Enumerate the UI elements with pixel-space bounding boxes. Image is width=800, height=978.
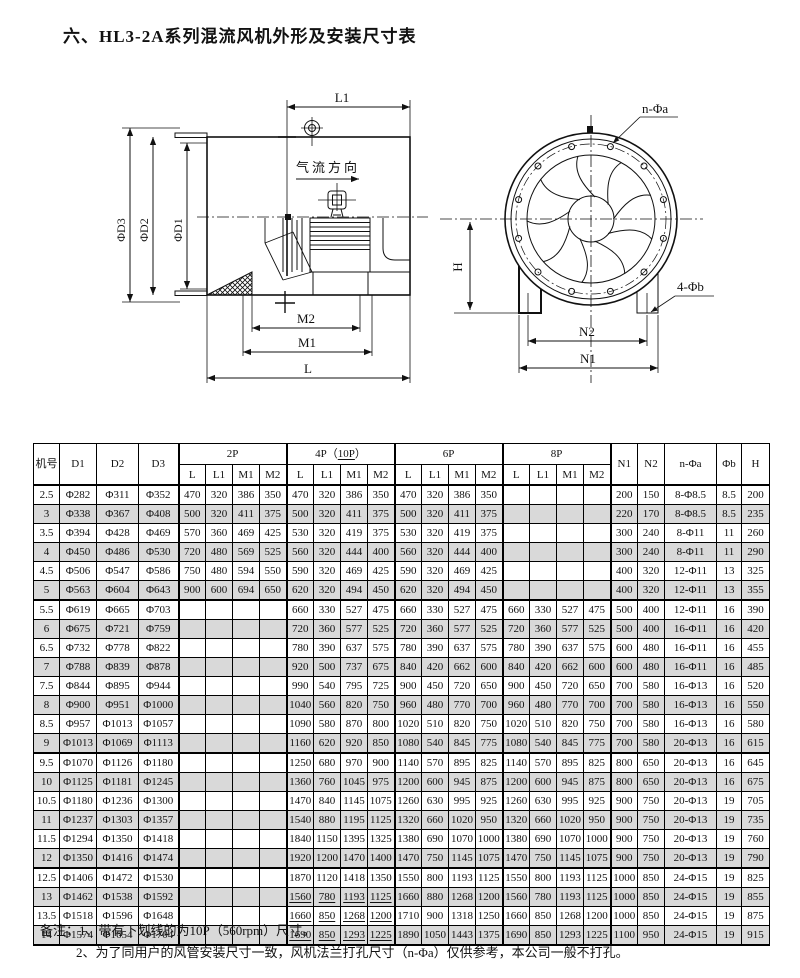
cell: 13 (34, 888, 60, 907)
cell: 320 (206, 505, 233, 524)
cell: 16-Φ11 (665, 639, 717, 658)
cell: Φ721 (97, 620, 139, 639)
cell: 11 (717, 543, 742, 562)
cell: 1400 (368, 849, 395, 869)
cell: 975 (368, 773, 395, 792)
cell (530, 581, 557, 601)
cell: Φ643 (139, 581, 179, 601)
cell (233, 753, 260, 773)
cell: 1360 (287, 773, 314, 792)
cell: 575 (368, 639, 395, 658)
cell: 1150 (314, 830, 341, 849)
cell: 390 (314, 639, 341, 658)
cell: 850 (638, 888, 665, 907)
cell: Φ665 (97, 600, 139, 620)
dim-label-d3: ΦD3 (114, 218, 128, 241)
cell: 900 (611, 830, 638, 849)
cell: 620 (287, 581, 314, 601)
cell: 20-Φ13 (665, 792, 717, 811)
cell: 444 (341, 543, 368, 562)
cell: 950 (476, 811, 503, 830)
cell: Φ586 (139, 562, 179, 581)
cell: 770 (449, 696, 476, 715)
cell (557, 562, 584, 581)
cell: 525 (260, 543, 287, 562)
cell: 690 (422, 830, 449, 849)
cell: 260 (742, 524, 770, 543)
cell: 500 (287, 505, 314, 524)
cell: 16 (717, 734, 742, 754)
sub-header-cell: M1 (233, 465, 260, 486)
cell (260, 715, 287, 734)
cell: 960 (395, 696, 422, 715)
cell: 735 (742, 811, 770, 830)
cell: Φ486 (97, 543, 139, 562)
cell: 386 (449, 485, 476, 505)
cell: Φ1357 (139, 811, 179, 830)
cell: Φ944 (139, 677, 179, 696)
cell: 720 (449, 677, 476, 696)
cell (233, 715, 260, 734)
cell: 855 (742, 888, 770, 907)
cell: 480 (530, 696, 557, 715)
cell: 900 (611, 792, 638, 811)
cell: 320 (314, 581, 341, 601)
table-row: 13Φ1462Φ1538Φ159215607801193112516608801… (34, 888, 770, 907)
cell: 900 (611, 849, 638, 869)
cell: Φ1236 (97, 792, 139, 811)
dim-label-n2: N2 (579, 324, 595, 339)
cell: 375 (476, 505, 503, 524)
cell: 320 (314, 562, 341, 581)
cell: 475 (476, 600, 503, 620)
table-row: 7Φ788Φ839Φ878920500737675840420662600840… (34, 658, 770, 677)
group-header-8p: 8P (503, 444, 611, 465)
table-row: 8.5Φ957Φ1013Φ105710905808708001020510820… (34, 715, 770, 734)
cell: 350 (368, 485, 395, 505)
sub-header-cell: M2 (584, 465, 611, 486)
cell: 375 (476, 524, 503, 543)
cell: 2.5 (34, 485, 60, 505)
cell: 19 (717, 849, 742, 869)
cell: 840 (503, 658, 530, 677)
cell: 750 (368, 696, 395, 715)
cell: 360 (314, 620, 341, 639)
cell: 845 (449, 734, 476, 754)
cell: 580 (742, 715, 770, 734)
cell: 570 (530, 753, 557, 773)
cell: 10.5 (34, 792, 60, 811)
cell: 320 (422, 505, 449, 524)
cell: 24-Φ15 (665, 868, 717, 888)
cell: 1193 (557, 888, 584, 907)
cell: 825 (742, 868, 770, 888)
cell (503, 505, 530, 524)
cell: 540 (314, 677, 341, 696)
cell: 637 (341, 639, 368, 658)
cell: 16 (717, 620, 742, 639)
cell: 16-Φ13 (665, 715, 717, 734)
cell (179, 696, 206, 715)
cell: 1070 (557, 830, 584, 849)
cell: 1125 (476, 868, 503, 888)
cell: 570 (422, 753, 449, 773)
table-row: 11.5Φ1294Φ1350Φ1418184011501395132513806… (34, 830, 770, 849)
cell: 920 (287, 658, 314, 677)
cell: 240 (638, 543, 665, 562)
cell: 419 (449, 524, 476, 543)
col-header-n-phi-a: n-Φa (665, 444, 717, 486)
cell (557, 581, 584, 601)
cell: 690 (530, 830, 557, 849)
cell: 3.5 (34, 524, 60, 543)
remarks: 备注：1、带有下划线的为10P（560rpm）尺寸。 2、为了同用户的风管安装尺… (40, 920, 629, 964)
cell: 1020 (503, 715, 530, 734)
cell: 850 (638, 868, 665, 888)
cell: 820 (449, 715, 476, 734)
dim-label-m2: M2 (297, 311, 315, 326)
cell: 469 (449, 562, 476, 581)
cell: 8.5 (717, 505, 742, 524)
cell (206, 696, 233, 715)
cell (233, 773, 260, 792)
sub-header-cell: L (287, 465, 314, 486)
cell: 1395 (341, 830, 368, 849)
cell: Φ1538 (97, 888, 139, 907)
cell: 240 (638, 524, 665, 543)
cell: 300 (611, 543, 638, 562)
table-row: 4.5Φ506Φ547Φ5867504805945505903204694255… (34, 562, 770, 581)
cell: 475 (584, 600, 611, 620)
table-row: 12.5Φ1406Φ1472Φ1530187011201418135015508… (34, 868, 770, 888)
cell: 320 (422, 562, 449, 581)
dim-label-l1: L1 (335, 90, 349, 105)
cell: 900 (503, 677, 530, 696)
cell: 950 (584, 811, 611, 830)
table-row: 9.5Φ1070Φ1126Φ11801250680970900114057089… (34, 753, 770, 773)
cell: 875 (584, 773, 611, 792)
cell: 850 (368, 734, 395, 754)
cell: 620 (395, 581, 422, 601)
cell: 600 (611, 658, 638, 677)
cell: 950 (638, 926, 665, 946)
cell: 469 (341, 562, 368, 581)
cell: 386 (233, 485, 260, 505)
cell: Φ311 (97, 485, 139, 505)
cell: 1840 (287, 830, 314, 849)
cell: 1195 (341, 811, 368, 830)
col-header-d3: D3 (139, 444, 179, 486)
cell (206, 620, 233, 639)
cell: 8.5 (717, 485, 742, 505)
sub-header-cell: L1 (530, 465, 557, 486)
cell: 1160 (287, 734, 314, 754)
cell (179, 620, 206, 639)
cell: 500 (611, 620, 638, 639)
cell: 19 (717, 926, 742, 946)
dim-label-d2: ΦD2 (137, 218, 151, 241)
cell: 16-Φ13 (665, 677, 717, 696)
cell: 16 (717, 715, 742, 734)
cell: 1125 (368, 811, 395, 830)
cell: 820 (341, 696, 368, 715)
cell: 480 (638, 658, 665, 677)
cell: 411 (341, 505, 368, 524)
airflow-direction-label: 气流方向 (296, 160, 360, 175)
cell: 569 (233, 543, 260, 562)
cell: 419 (341, 524, 368, 543)
cell: 580 (314, 715, 341, 734)
cell: 577 (341, 620, 368, 639)
cell: Φ1113 (139, 734, 179, 754)
cell: 500 (314, 658, 341, 677)
table-row: 10.5Φ1180Φ1236Φ1300147084011451075126063… (34, 792, 770, 811)
group-header-4p-10p: 4P（10P） (287, 444, 395, 465)
cell: Φ1013 (97, 715, 139, 734)
dim-label-l: L (304, 361, 312, 376)
table-row: 5Φ563Φ604Φ643900600694650620320494450620… (34, 581, 770, 601)
cell: 840 (314, 792, 341, 811)
cell: 470 (179, 485, 206, 505)
dim-label-d1: ΦD1 (171, 218, 185, 241)
cell: 1145 (557, 849, 584, 869)
cell: 320 (422, 524, 449, 543)
cell: 330 (530, 600, 557, 620)
cell: 600 (611, 639, 638, 658)
cell: 485 (742, 658, 770, 677)
cell (206, 773, 233, 792)
cell: 235 (742, 505, 770, 524)
cell: Φ1472 (97, 868, 139, 888)
cell (179, 888, 206, 907)
cell: 1250 (287, 753, 314, 773)
cell: 580 (638, 696, 665, 715)
cell: 320 (314, 524, 341, 543)
cell: 650 (638, 753, 665, 773)
cell: 637 (449, 639, 476, 658)
cell: 350 (476, 485, 503, 505)
cell: 780 (287, 639, 314, 658)
cell: 470 (287, 485, 314, 505)
cell (260, 811, 287, 830)
cell: 570 (179, 524, 206, 543)
cell (557, 524, 584, 543)
cell: 400 (638, 620, 665, 639)
cell: 390 (742, 600, 770, 620)
cell (260, 773, 287, 792)
cell: 737 (341, 658, 368, 677)
cell: 527 (449, 600, 476, 620)
cell: 1125 (584, 868, 611, 888)
cell: 375 (368, 524, 395, 543)
cell (206, 734, 233, 754)
cell: 400 (368, 543, 395, 562)
cell: 220 (611, 505, 638, 524)
cell: 16 (717, 696, 742, 715)
cell: 600 (584, 658, 611, 677)
cell (260, 639, 287, 658)
cell: Φ1245 (139, 773, 179, 792)
cell (233, 600, 260, 620)
cell: 330 (422, 600, 449, 620)
dim-label-m1: M1 (298, 335, 316, 350)
cell: 760 (742, 830, 770, 849)
cell: 470 (395, 485, 422, 505)
col-header-h: H (742, 444, 770, 486)
cell: 750 (638, 849, 665, 869)
cell: 945 (557, 773, 584, 792)
cell: 825 (584, 753, 611, 773)
cell: 5 (34, 581, 60, 601)
cell: 895 (557, 753, 584, 773)
cell: 1200 (503, 773, 530, 792)
cell (557, 485, 584, 505)
cell (179, 830, 206, 849)
cell: 13 (717, 562, 742, 581)
cell: 880 (422, 888, 449, 907)
cell (179, 849, 206, 869)
cell (179, 658, 206, 677)
cell: 19 (717, 868, 742, 888)
cell: 795 (341, 677, 368, 696)
sub-header-cell: L (395, 465, 422, 486)
cell: 650 (260, 581, 287, 601)
table-row: 10Φ1125Φ1181Φ124513607601045975120060094… (34, 773, 770, 792)
cell: 494 (449, 581, 476, 601)
cell: 469 (233, 524, 260, 543)
fan-front-view-drawing: n-Φa H 4-Φb N2 N1 (440, 95, 770, 395)
table-row: 5.5Φ619Φ665Φ7036603305274756603305274756… (34, 600, 770, 620)
cell: 400 (476, 543, 503, 562)
cell: 420 (422, 658, 449, 677)
cell: 170 (638, 505, 665, 524)
cell: 845 (557, 734, 584, 754)
cell: 475 (368, 600, 395, 620)
cell: 590 (287, 562, 314, 581)
cell: 1075 (368, 792, 395, 811)
cell: 320 (314, 505, 341, 524)
cell: Φ506 (60, 562, 97, 581)
cell: 600 (422, 773, 449, 792)
cell (179, 868, 206, 888)
cell: 500 (395, 505, 422, 524)
cell: Φ563 (60, 581, 97, 601)
cell: 1268 (449, 888, 476, 907)
cell: 1020 (395, 715, 422, 734)
cell: 420 (742, 620, 770, 639)
cell: 400 (611, 581, 638, 601)
cell: 24-Φ15 (665, 907, 717, 926)
cell: 8.5 (34, 715, 60, 734)
cell: Φ367 (97, 505, 139, 524)
cell: 900 (179, 581, 206, 601)
col-header-d1: D1 (60, 444, 97, 486)
cell: 350 (260, 485, 287, 505)
cell: 9 (34, 734, 60, 754)
cell (206, 868, 233, 888)
cell: 510 (422, 715, 449, 734)
cell: 300 (611, 524, 638, 543)
cell: 320 (206, 485, 233, 505)
cell: 1193 (557, 868, 584, 888)
cell: 600 (476, 658, 503, 677)
cell: 945 (449, 773, 476, 792)
cell (584, 524, 611, 543)
cell: Φ822 (139, 639, 179, 658)
col-header-n1: N1 (611, 444, 638, 486)
cell (206, 888, 233, 907)
cell (206, 830, 233, 849)
cell: 20-Φ13 (665, 734, 717, 754)
cell: Φ1418 (139, 830, 179, 849)
cell: 425 (476, 562, 503, 581)
cell: 6 (34, 620, 60, 639)
cell: 700 (611, 677, 638, 696)
cell (206, 677, 233, 696)
cell: 660 (395, 600, 422, 620)
cell: 577 (557, 620, 584, 639)
cell: 675 (742, 773, 770, 792)
cell: 594 (233, 562, 260, 581)
cell: Φ675 (60, 620, 97, 639)
cell: Φ895 (97, 677, 139, 696)
cell: 577 (449, 620, 476, 639)
cell: 915 (742, 926, 770, 946)
cell: Φ469 (139, 524, 179, 543)
cell: 700 (611, 715, 638, 734)
cell: 320 (314, 543, 341, 562)
cell: 20-Φ13 (665, 753, 717, 773)
cell: 330 (314, 600, 341, 620)
cell: 800 (368, 715, 395, 734)
cell: 500 (611, 600, 638, 620)
cell: Φ394 (60, 524, 97, 543)
cell: 540 (530, 734, 557, 754)
cell: 1000 (611, 868, 638, 888)
cell (260, 868, 287, 888)
cell: 320 (422, 581, 449, 601)
cell (260, 753, 287, 773)
cell: 990 (287, 677, 314, 696)
cell: 645 (742, 753, 770, 773)
cell: 900 (368, 753, 395, 773)
cell: 450 (530, 677, 557, 696)
cell: 650 (476, 677, 503, 696)
cell: 1000 (611, 888, 638, 907)
cell: 19 (717, 888, 742, 907)
cell: 880 (314, 811, 341, 830)
cell: 775 (476, 734, 503, 754)
col-header-phi-b: Φb (717, 444, 742, 486)
cell: 525 (476, 620, 503, 639)
cell: 7 (34, 658, 60, 677)
cell: 4.5 (34, 562, 60, 581)
cell: 825 (476, 753, 503, 773)
cell: Φ1300 (139, 792, 179, 811)
cell: 770 (557, 696, 584, 715)
cell: Φ1303 (97, 811, 139, 830)
cell (503, 562, 530, 581)
cell: 550 (260, 562, 287, 581)
cell: Φ732 (60, 639, 97, 658)
cell: 1320 (395, 811, 422, 830)
cell: 750 (584, 715, 611, 734)
cell: 450 (368, 581, 395, 601)
cell: 780 (395, 639, 422, 658)
cell: 386 (341, 485, 368, 505)
cell: Φ338 (60, 505, 97, 524)
cell (233, 734, 260, 754)
